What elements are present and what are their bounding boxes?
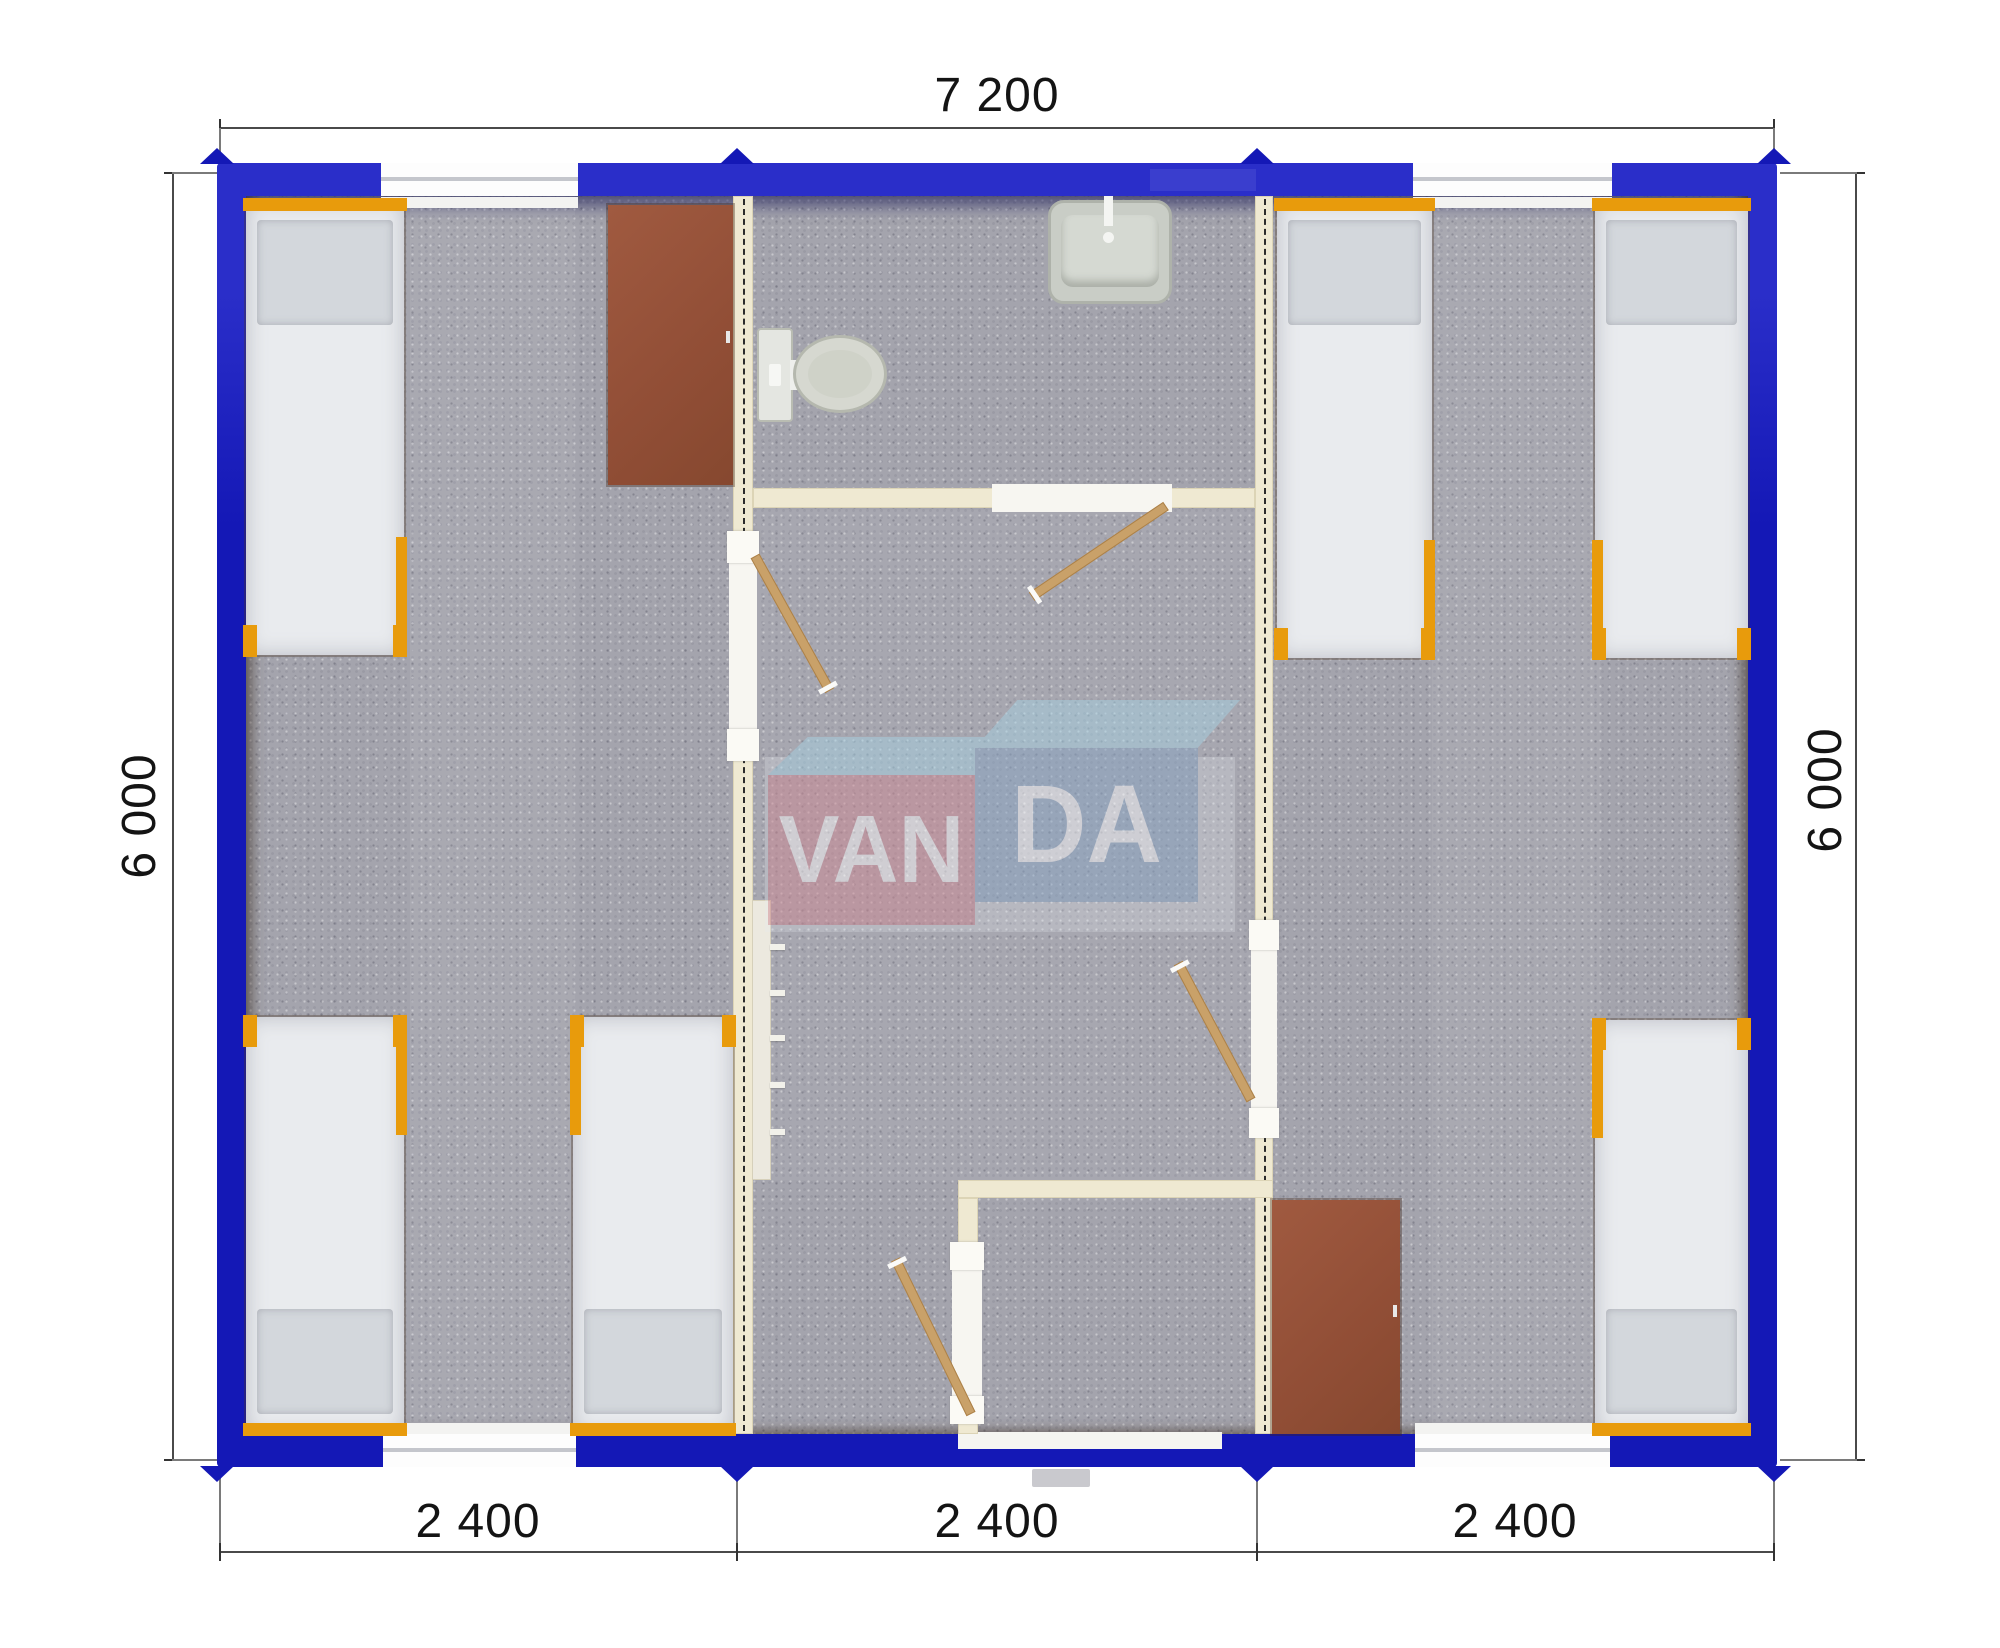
bed-headboard <box>1592 1423 1751 1436</box>
bed-pillow <box>257 1309 393 1414</box>
bed-headboard <box>1274 198 1435 211</box>
dimension-total-width: 7 200 <box>897 72 1097 120</box>
bed-pillow <box>1606 1309 1738 1414</box>
bed-post <box>243 625 257 657</box>
bed-pillow <box>584 1309 722 1414</box>
bed-post <box>1274 628 1288 660</box>
bed-post <box>1737 1018 1751 1050</box>
dimension-tick <box>736 1543 738 1561</box>
bed-post <box>1737 628 1751 660</box>
dimension-line-bottom <box>220 1551 1774 1553</box>
dimension-module-1: 2 400 <box>378 1498 578 1546</box>
vanda-watermark-logo: VAN DA <box>730 690 1270 960</box>
bed-post <box>722 1015 736 1047</box>
module-joint-icon <box>200 148 234 164</box>
extension-line <box>172 172 218 174</box>
bed-post <box>1421 628 1435 660</box>
dimension-line-right <box>1855 173 1857 1461</box>
window-sill <box>383 1423 576 1434</box>
vestibule-wall-horizontal <box>958 1180 1273 1198</box>
door-opening-bathroom <box>992 484 1172 512</box>
module-joint-icon <box>1757 148 1791 164</box>
bed-post <box>1592 628 1606 660</box>
bed-post <box>570 1015 584 1047</box>
bed-rail <box>1592 1050 1603 1138</box>
floor-walkway-right <box>1432 196 1600 1434</box>
dimension-tick <box>1256 1543 1258 1561</box>
module-joint-icon <box>1757 1466 1791 1482</box>
entrance-door-threshold <box>958 1432 1222 1449</box>
bed-pillow <box>1288 220 1421 325</box>
bed-post <box>1592 1018 1606 1050</box>
window-sill <box>1413 197 1612 208</box>
logo-text-da: DA <box>981 748 1193 902</box>
dimension-module-2: 2 400 <box>897 1498 1097 1546</box>
dimension-tick <box>219 1543 221 1561</box>
bed-post <box>243 1015 257 1047</box>
bed-headboard <box>243 1423 407 1436</box>
dimension-height-right: 6 000 <box>1802 690 1850 890</box>
bed-headboard <box>570 1423 736 1436</box>
dimension-module-3: 2 400 <box>1415 1498 1615 1546</box>
window-top-left <box>381 163 578 196</box>
logo-text-van: VAN <box>773 775 970 925</box>
bed-post <box>393 625 407 657</box>
window-sill <box>381 197 578 208</box>
toilet-tank <box>757 328 793 422</box>
dimension-height-left: 6 000 <box>116 716 164 916</box>
bed-top-right-2 <box>1595 200 1748 658</box>
bed-pillow <box>1606 220 1738 325</box>
window-bottom-right <box>1415 1434 1610 1467</box>
bed-headboard <box>1592 198 1751 211</box>
module-joint-icon <box>1240 1466 1274 1482</box>
coat-hook <box>770 990 785 996</box>
bed-rail <box>396 537 407 625</box>
window-sill <box>1415 1423 1610 1434</box>
dimension-line-left <box>172 173 174 1461</box>
bed-bottom-left-1 <box>246 1017 404 1434</box>
toilet-icon <box>793 335 887 413</box>
dimension-line-top <box>220 127 1774 129</box>
faucet-icon <box>1104 196 1113 226</box>
bed-bottom-right <box>1595 1020 1748 1434</box>
dimension-tick <box>1773 1543 1775 1561</box>
module-joint-icon <box>720 1466 754 1482</box>
bed-top-right-1 <box>1277 200 1432 658</box>
window-bottom-left <box>383 1434 576 1467</box>
bed-bottom-left-2 <box>573 1017 733 1434</box>
window-top-right <box>1413 163 1612 196</box>
logo-box-top-face <box>975 700 1240 748</box>
bed-rail <box>570 1047 581 1135</box>
entrance-step <box>1032 1469 1090 1487</box>
floor-plan-canvas: 7 200 6 000 6 000 2 400 2 400 2 400 <box>0 0 2000 1648</box>
bed-headboard <box>243 198 407 211</box>
bed-pillow <box>257 220 393 325</box>
coat-hook <box>770 1082 785 1088</box>
extension-line <box>1780 1459 1857 1461</box>
coat-hook <box>770 1035 785 1041</box>
module-joint-icon <box>200 1466 234 1482</box>
bed-top-left <box>246 200 404 655</box>
wardrobe-left-room <box>608 205 733 485</box>
window-bathroom-high <box>1150 169 1256 191</box>
wardrobe-right-room <box>1272 1200 1400 1434</box>
extension-line <box>1780 172 1857 174</box>
module-joint-icon <box>720 148 754 164</box>
faucet-handle <box>1103 232 1114 243</box>
bed-post <box>393 1015 407 1047</box>
extension-line <box>172 1459 218 1461</box>
bed-rail <box>1592 540 1603 628</box>
bed-rail <box>1424 540 1435 628</box>
door-jamb <box>950 1242 984 1270</box>
module-joint-icon <box>1240 148 1274 164</box>
door-jamb <box>1249 1108 1279 1138</box>
bed-rail <box>396 1047 407 1135</box>
floor-walkway-left <box>410 196 575 1434</box>
coat-hook <box>770 1129 785 1135</box>
